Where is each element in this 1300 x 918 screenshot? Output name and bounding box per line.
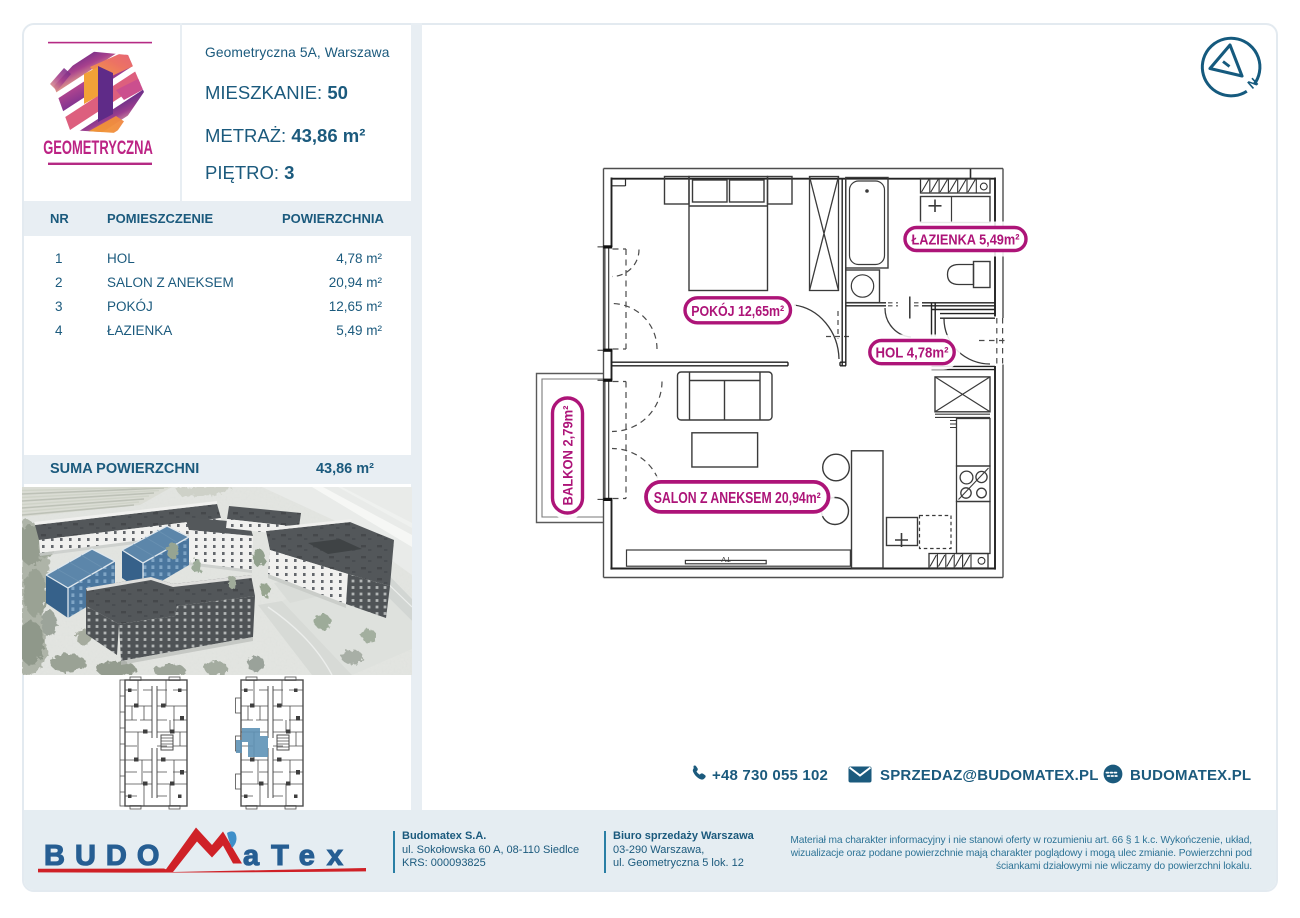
svg-text:BALKON 2,79m²: BALKON 2,79m²	[560, 405, 576, 505]
svg-text:POKÓJ 12,65m²: POKÓJ 12,65m²	[691, 302, 784, 320]
svg-text:GEOMETRYCZNA: GEOMETRYCZNA	[43, 136, 153, 158]
svg-text:HOL 4,78m²: HOL 4,78m²	[876, 345, 949, 362]
svg-text:SALON Z ANEKSEM 20,94m²: SALON Z ANEKSEM 20,94m²	[654, 490, 821, 507]
svg-text:aTex: aTex	[243, 840, 355, 872]
svg-text:ŁAZIENKA 5,49m²: ŁAZIENKA 5,49m²	[912, 232, 1020, 249]
svg-text:BUDO: BUDO	[44, 840, 169, 872]
svg-text:TV: TV	[721, 555, 731, 564]
